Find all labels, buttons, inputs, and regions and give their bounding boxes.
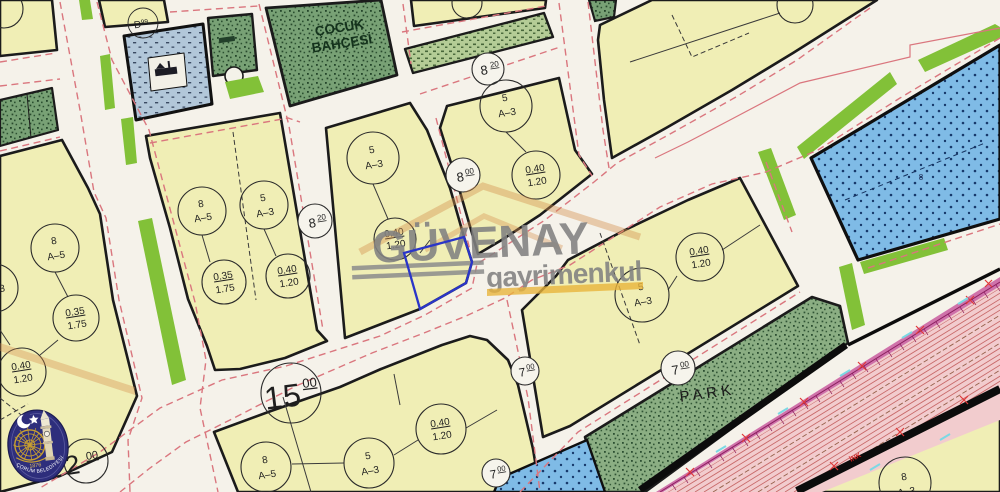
svg-text:00: 00 — [85, 449, 99, 463]
svg-text:00: 00 — [526, 362, 536, 372]
svg-text:00: 00 — [301, 374, 317, 391]
svg-text:15: 15 — [262, 376, 304, 416]
svg-text:8: 8 — [919, 173, 924, 182]
svg-text:00: 00 — [497, 464, 507, 474]
